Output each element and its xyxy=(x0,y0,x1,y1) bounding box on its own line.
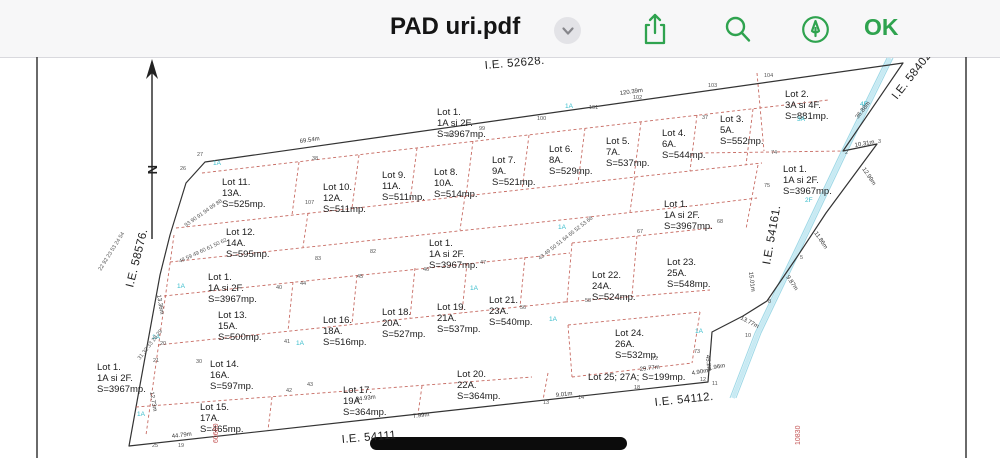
point-number: 2 xyxy=(845,150,848,156)
point-number: 30 xyxy=(196,359,202,365)
lot-labels: Lot 1.1A si 2F.S=3967mp.Lot 11.13A.S=525… xyxy=(97,89,832,435)
lot-label: Lot 18.20A.S=527mp. xyxy=(382,307,426,340)
viewer-toolbar: PAD uri.pdf xyxy=(0,0,1000,58)
point-number: 56 xyxy=(520,305,526,311)
street-label: I.E. 54161. xyxy=(761,204,783,265)
point-number: 20 xyxy=(160,341,166,347)
lot-label: Lot 10.12A.S=511mp. xyxy=(323,182,366,215)
lot-label: Lot 1.1A si 2F.S=3967mp. xyxy=(208,272,257,305)
zone-code-label: 2F xyxy=(805,197,813,204)
point-number: 21 xyxy=(153,358,159,364)
done-button[interactable]: OK xyxy=(864,14,899,41)
measurement-label: 13.77m xyxy=(739,315,759,330)
point-number-cluster: 22 92 23 53 24 54 xyxy=(98,231,127,272)
point-number: 74 xyxy=(771,150,777,156)
street-label: I.E. 58576. xyxy=(124,228,150,289)
point-number-cluster: 93 90 91 94 89 88 xyxy=(184,198,224,228)
cadastral-plan-page[interactable]: N xyxy=(0,57,1000,458)
point-number: 38 xyxy=(312,156,318,162)
point-number: 107 xyxy=(305,200,314,206)
zone-code-label: 1A xyxy=(177,283,186,290)
chevron-down-icon xyxy=(561,24,575,38)
lot-label: Lot 23.25A.S=548mp. xyxy=(667,257,711,290)
pdf-viewer: PAD uri.pdf xyxy=(0,0,1000,458)
zone-code-label: 1A xyxy=(565,103,574,110)
lot-label: Lot 14.16A.S=597mp. xyxy=(210,359,254,392)
point-number: 5 xyxy=(800,255,803,261)
lot-label: Lot 11.13A.S=525mp. xyxy=(222,177,266,210)
measurement-label: 7.99m xyxy=(413,412,430,420)
point-number: 18 xyxy=(634,385,640,391)
lot-label: Lot 6.8A.S=529mp. xyxy=(549,144,593,177)
point-number: 73 xyxy=(694,349,700,355)
zone-code-label: 1A xyxy=(296,340,305,347)
markup-icon xyxy=(801,15,830,44)
point-number: 3 xyxy=(878,139,881,145)
title-menu-button[interactable] xyxy=(554,17,581,44)
lot-label: Lot 4.6A.S=544mp. xyxy=(662,128,706,161)
point-number: 58 xyxy=(585,298,591,304)
markup-button[interactable] xyxy=(801,15,830,49)
lot-label: Lot 1.1A si 2F.S=3967mp. xyxy=(97,362,146,395)
cadastral-id-label: 10830 xyxy=(795,425,802,445)
zone-code-label: 3A xyxy=(797,116,806,123)
point-number: 104 xyxy=(764,73,773,79)
point-number: 44 xyxy=(300,281,306,287)
point-number: 75 xyxy=(764,183,770,189)
point-number: 72 xyxy=(652,356,658,362)
point-number: 40 xyxy=(276,285,282,291)
point-number: 103 xyxy=(708,83,717,89)
street-label: I.E. 52628. xyxy=(484,57,545,72)
point-number: 19 xyxy=(178,443,184,449)
lot-label: Lot 7.9A.S=521mp. xyxy=(492,155,536,188)
measurement-label: 34.93m xyxy=(356,395,377,403)
point-number: 26 xyxy=(180,166,186,172)
measurement-label: 44.79m xyxy=(172,432,193,440)
measurement-label: 11.86m xyxy=(812,231,828,251)
point-number: 102 xyxy=(633,95,642,101)
north-label: N xyxy=(145,165,160,174)
street-label: I.E. 54112. xyxy=(654,391,714,409)
point-number: 13 xyxy=(543,400,549,406)
measurement-label: 10.31m xyxy=(854,140,875,149)
measurement-label: 15.01m xyxy=(747,272,755,293)
lot-label: Lot 21.23A.S=540mp. xyxy=(489,295,533,328)
lot-label: Lot 22.24A.S=524mp. xyxy=(592,270,636,303)
point-number: 47 xyxy=(480,260,486,266)
point-number: 43 xyxy=(307,382,313,388)
lot-label: Lot 3.5A.S=552mp. xyxy=(720,114,764,147)
point-number: 101 xyxy=(589,105,598,111)
zone-code-label: 1A xyxy=(470,285,479,292)
point-number: 12 xyxy=(700,377,706,383)
point-number: 67 xyxy=(637,229,643,235)
lot-label: Lot 1.1A si 2F.S=3967mp. xyxy=(783,164,832,197)
point-number: 37 xyxy=(702,115,708,121)
zone-code-label: 1A xyxy=(558,224,567,231)
measurement-label: 9.87m xyxy=(784,275,798,292)
redaction-bar xyxy=(370,437,627,450)
point-number: 45 xyxy=(357,274,363,280)
zone-code-label: 1A xyxy=(549,316,558,323)
point-number: 8 xyxy=(768,299,771,305)
document-title: PAD uri.pdf xyxy=(390,13,520,41)
lot-label: Lot 15.17A.S=465mp. xyxy=(200,402,244,435)
point-number: 11 xyxy=(712,381,718,387)
point-number-cluster: 43 49 50 51 64 65 52 53 66 xyxy=(538,215,595,261)
north-arrow: N xyxy=(145,59,160,239)
measurement-label: 13.36m xyxy=(155,294,164,315)
point-number: 82 xyxy=(370,249,376,255)
lot-label: Lot 2.3A si 4F.S=881mp. xyxy=(785,89,829,122)
search-button[interactable] xyxy=(724,15,751,48)
search-icon xyxy=(724,15,751,43)
lot-label: Lot 25; 27A; S=199mp. xyxy=(588,372,685,383)
point-number: 83 xyxy=(315,256,321,262)
measurement-label: 69.54m xyxy=(299,136,320,145)
lot-label: Lot 9.11A.S=511mp. xyxy=(382,170,425,203)
lot-label: Lot 12.14A.S=595mp. xyxy=(226,227,270,260)
point-number: 42 xyxy=(286,388,292,394)
point-number: 10 xyxy=(745,333,751,339)
lot-label: Lot 8.10A.S=514mp. xyxy=(434,167,478,200)
share-icon xyxy=(641,13,669,46)
cadastral-id-label: 60660 xyxy=(213,423,220,443)
point-number: 100 xyxy=(537,116,546,122)
point-number: 99 xyxy=(479,126,485,132)
point-number: 68 xyxy=(717,219,723,225)
lot-label: Lot 16.18A.S=516mp. xyxy=(323,315,367,348)
lot-label: Lot 5.7A.S=537mp. xyxy=(606,136,650,169)
zone-code-label: 1A xyxy=(695,328,704,335)
measurement-label: 12.73m xyxy=(148,391,157,412)
zone-code-label: 1A xyxy=(213,160,222,167)
lot-label: Lot 19.21A.S=537mp. xyxy=(437,302,481,335)
point-number: 14 xyxy=(578,395,584,401)
point-number-cluster: 48 59 49 60 61 50 62 xyxy=(178,237,228,264)
point-number: 27 xyxy=(197,152,203,158)
point-number: 25 xyxy=(152,443,158,449)
zone-code-label: 1A xyxy=(137,411,146,418)
point-number: 41 xyxy=(284,339,290,345)
lot-label: Lot 1.1A si 2F.S=3967mp. xyxy=(429,238,478,271)
share-button[interactable] xyxy=(641,13,669,51)
lot-label: Lot 20.22A.S=364mp. xyxy=(457,369,501,402)
point-number: 36 xyxy=(446,133,452,139)
measurement-label: 12.99m xyxy=(860,167,876,187)
point-number: 46 xyxy=(423,267,429,273)
lot-label: Lot 13.15A.S=500mp. xyxy=(218,310,262,343)
